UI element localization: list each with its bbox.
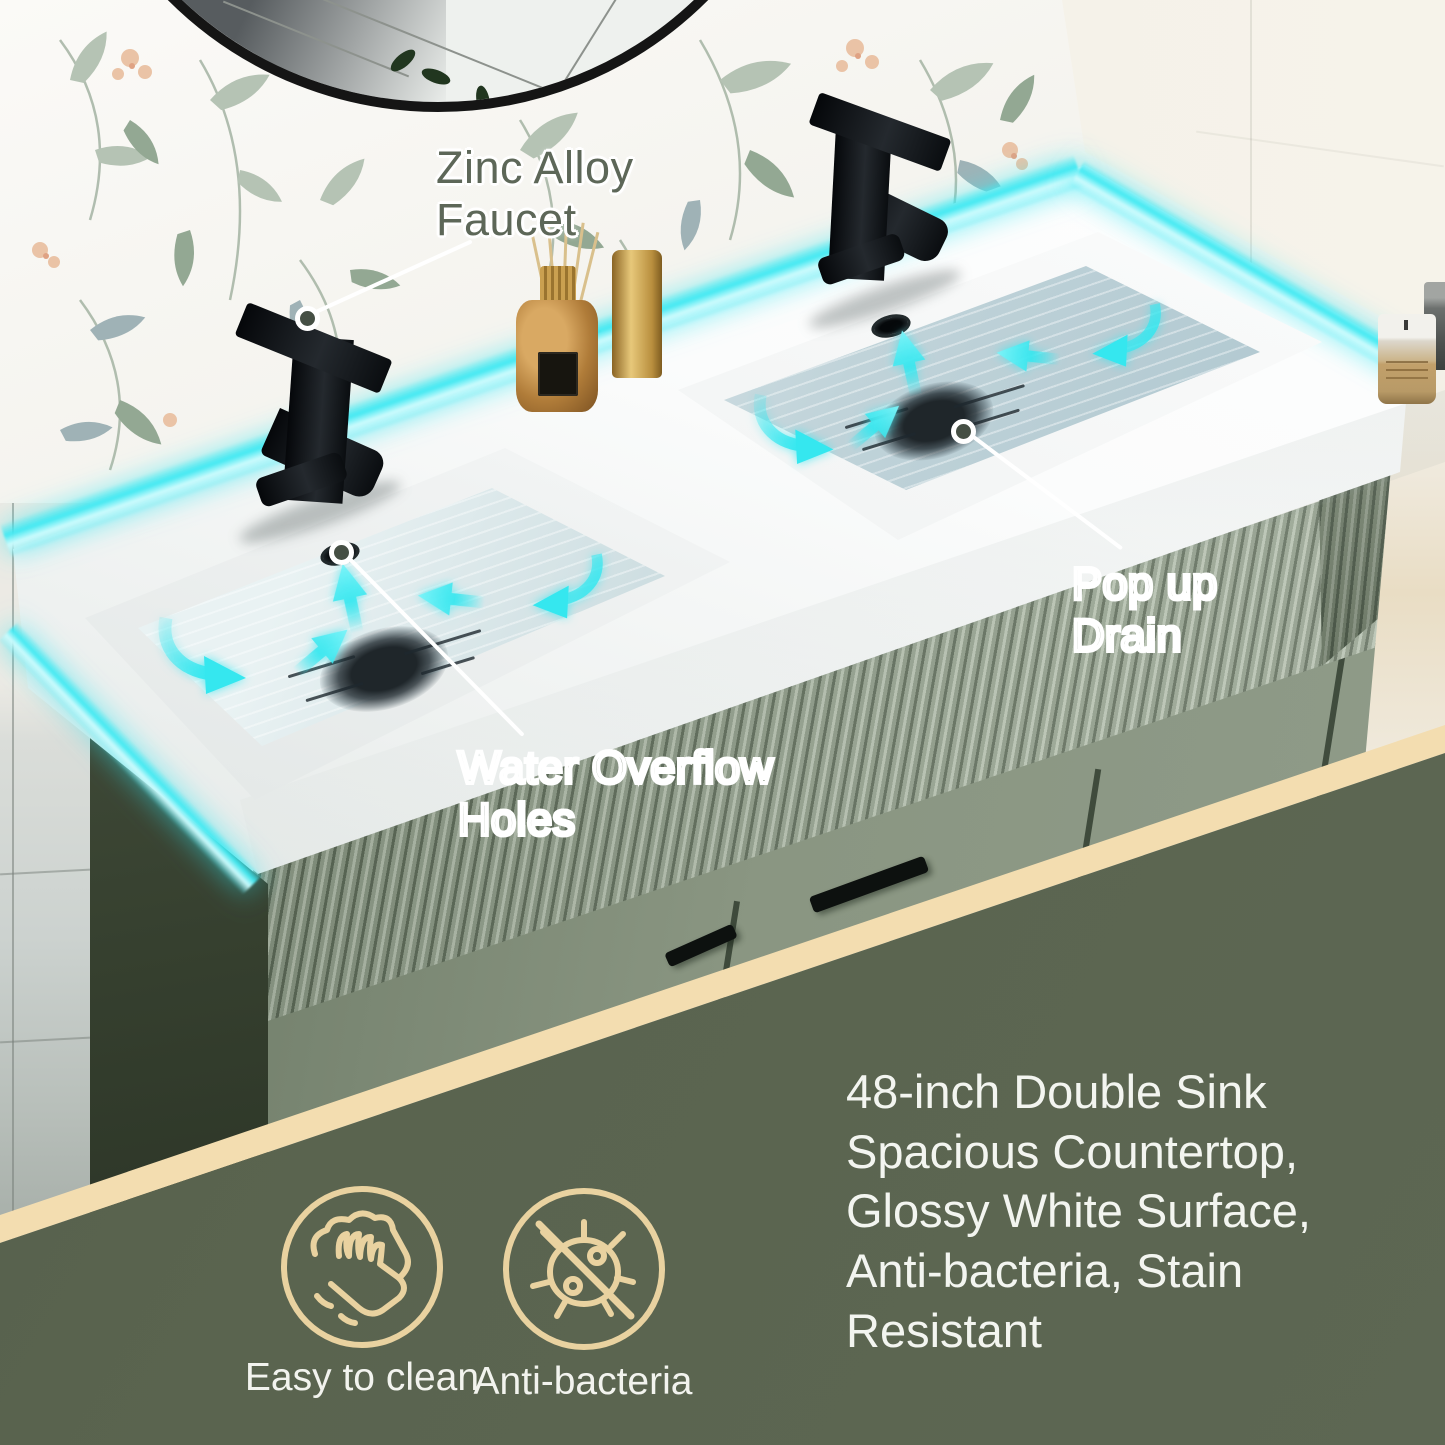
gold-cosmetic-bottle [612,250,662,378]
flow-arrow [412,576,490,622]
tile-grout [12,503,14,1251]
callout-dot-overflow [329,540,354,565]
no-bacteria-icon [509,1194,659,1344]
callout-dot-drain [951,419,976,444]
easy-clean-badge [281,1186,443,1348]
hand-wipe-icon [287,1192,437,1342]
flow-arrow-curved [1078,292,1166,374]
reed-diffuser-bottle [516,300,598,412]
anti-bacteria-badge [503,1188,665,1350]
drain-callout-label: Pop up Drain [1072,558,1218,662]
callout-dot-faucet [295,306,320,331]
flow-arrow-curved [748,378,848,470]
faucet-callout-label: Zinc Alloy Faucet [436,142,634,246]
anti-bacteria-label: Anti-bacteria [433,1360,733,1404]
mirror-floral-petal [646,56,676,69]
feature-text: 48-inch Double Sink Spacious Countertop,… [846,1062,1406,1360]
product-image: Easy to clean Anti-bacteria 48-inch Doub… [0,0,1445,1445]
flow-arrow [990,334,1065,377]
flow-arrow-curved [152,600,262,700]
bottle-label [612,312,662,354]
overflow-callout-label: Water Overflow Holes [458,742,773,846]
flow-arrow-curved [518,542,608,626]
candle [1378,314,1436,404]
mirror-reflection-shade [106,0,446,112]
diffuser-label [538,352,578,396]
mirror-floral-petal [474,85,492,112]
